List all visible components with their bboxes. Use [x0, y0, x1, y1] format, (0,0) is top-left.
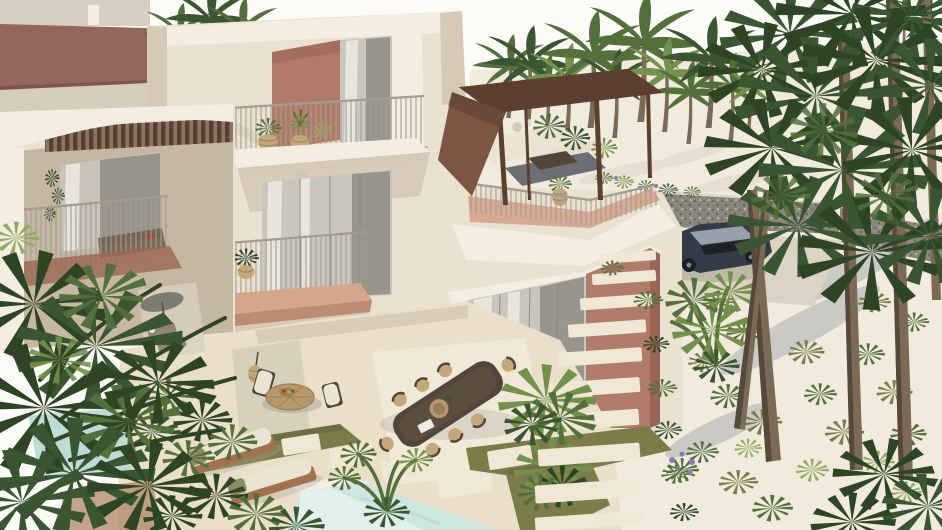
tower-side-face: [440, 11, 466, 105]
far-roof-strip: [0, 0, 150, 26]
render-canvas: White stucco villa with terracotta accen…: [0, 0, 942, 530]
far-chimney: [88, 5, 99, 25]
round-coffee-table: [266, 384, 314, 410]
architectural-render: Aerial 3D architectural rendering of a m…: [0, 0, 942, 530]
